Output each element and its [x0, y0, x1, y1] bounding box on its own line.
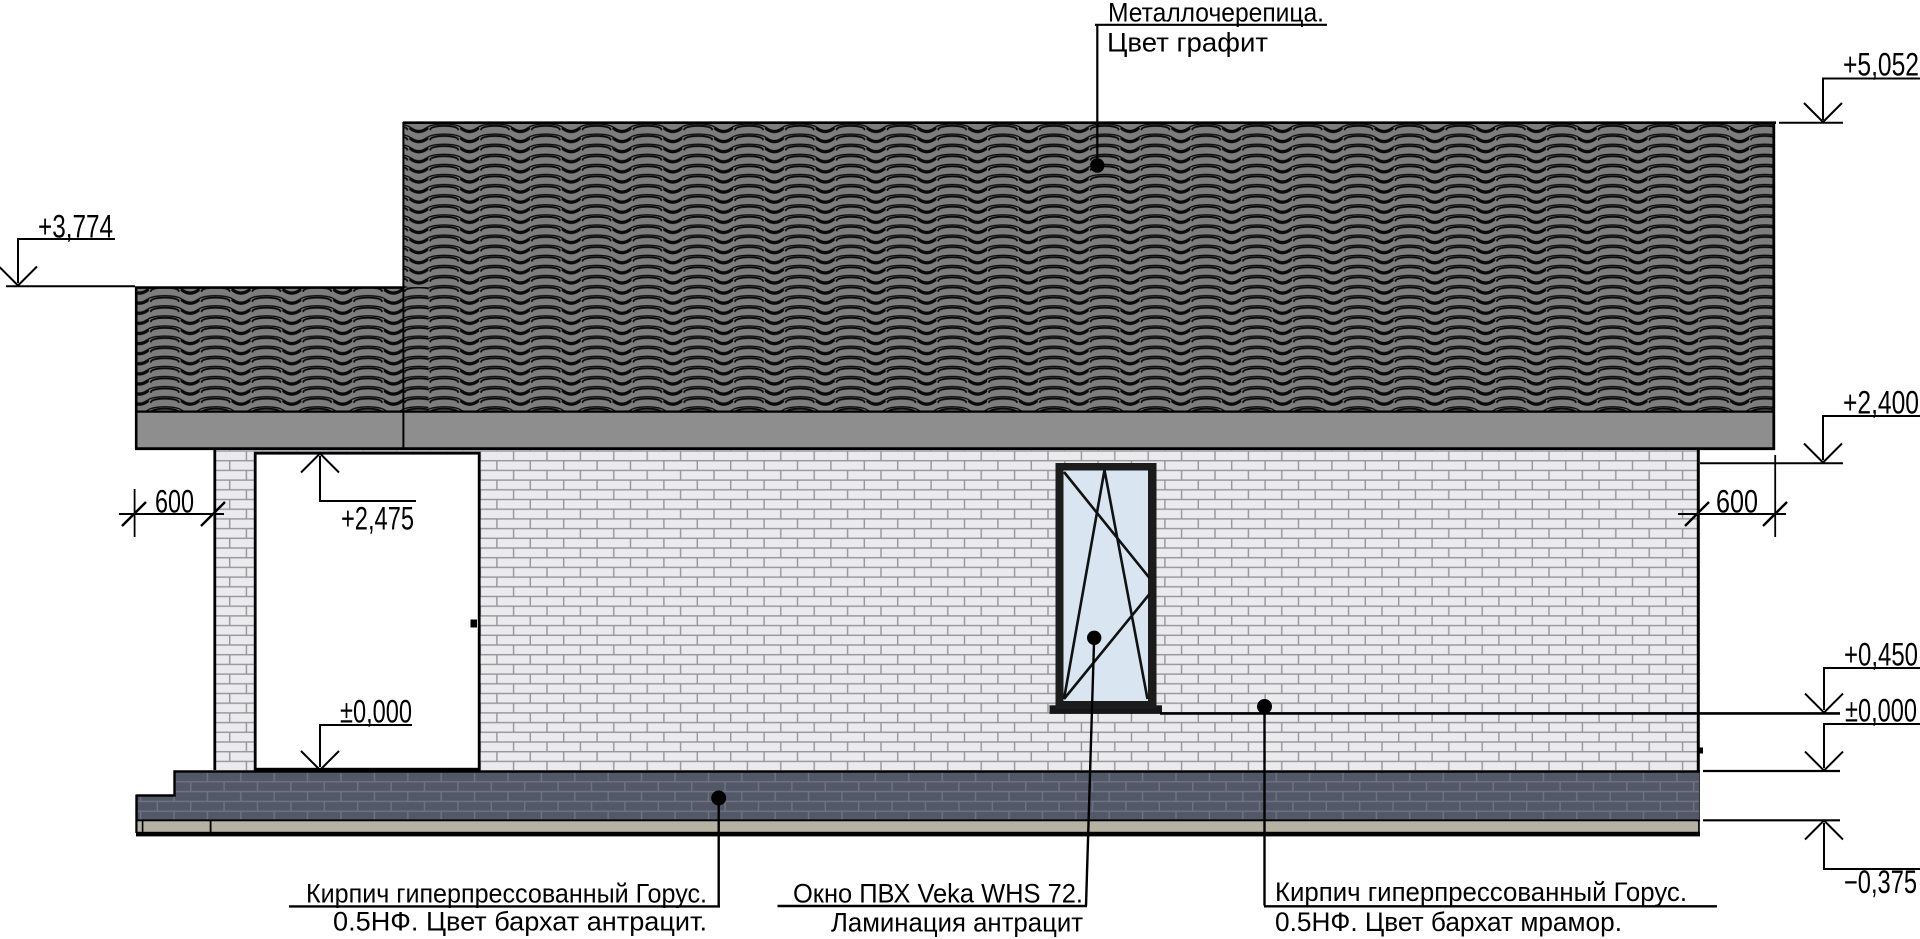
svg-text:+0,450: +0,450 — [1844, 637, 1918, 673]
svg-text:±0,000: ±0,000 — [340, 694, 412, 730]
svg-text:Ламинация антрацит: Ламинация антрацит — [831, 908, 1083, 938]
svg-text:+2,475: +2,475 — [341, 501, 414, 537]
svg-text:Кирпич гиперпрессованный Горус: Кирпич гиперпрессованный Горус. — [306, 879, 707, 909]
svg-text:+5,052: +5,052 — [1843, 47, 1919, 83]
svg-text:0.5НФ. Цвет бархат антрацит.: 0.5НФ. Цвет бархат антрацит. — [333, 907, 707, 937]
svg-text:0.5НФ. Цвет бархат мрамор.: 0.5НФ. Цвет бархат мрамор. — [1275, 907, 1622, 937]
svg-text:+3,774: +3,774 — [38, 209, 113, 245]
svg-text:−0,375: −0,375 — [1844, 864, 1917, 900]
svg-text:600: 600 — [155, 484, 194, 520]
svg-text:600: 600 — [1716, 484, 1758, 520]
svg-text:Металлочерепица.: Металлочерепица. — [1108, 0, 1324, 28]
svg-text:Цвет графит: Цвет графит — [1107, 28, 1268, 58]
svg-text:Окно ПВХ Veka WHS 72.: Окно ПВХ Veka WHS 72. — [793, 879, 1083, 909]
svg-text:Кирпич гиперпрессованный Горус: Кирпич гиперпрессованный Горус. — [1275, 877, 1687, 907]
svg-text:+2,400: +2,400 — [1843, 385, 1919, 421]
svg-text:±0,000: ±0,000 — [1845, 693, 1917, 729]
